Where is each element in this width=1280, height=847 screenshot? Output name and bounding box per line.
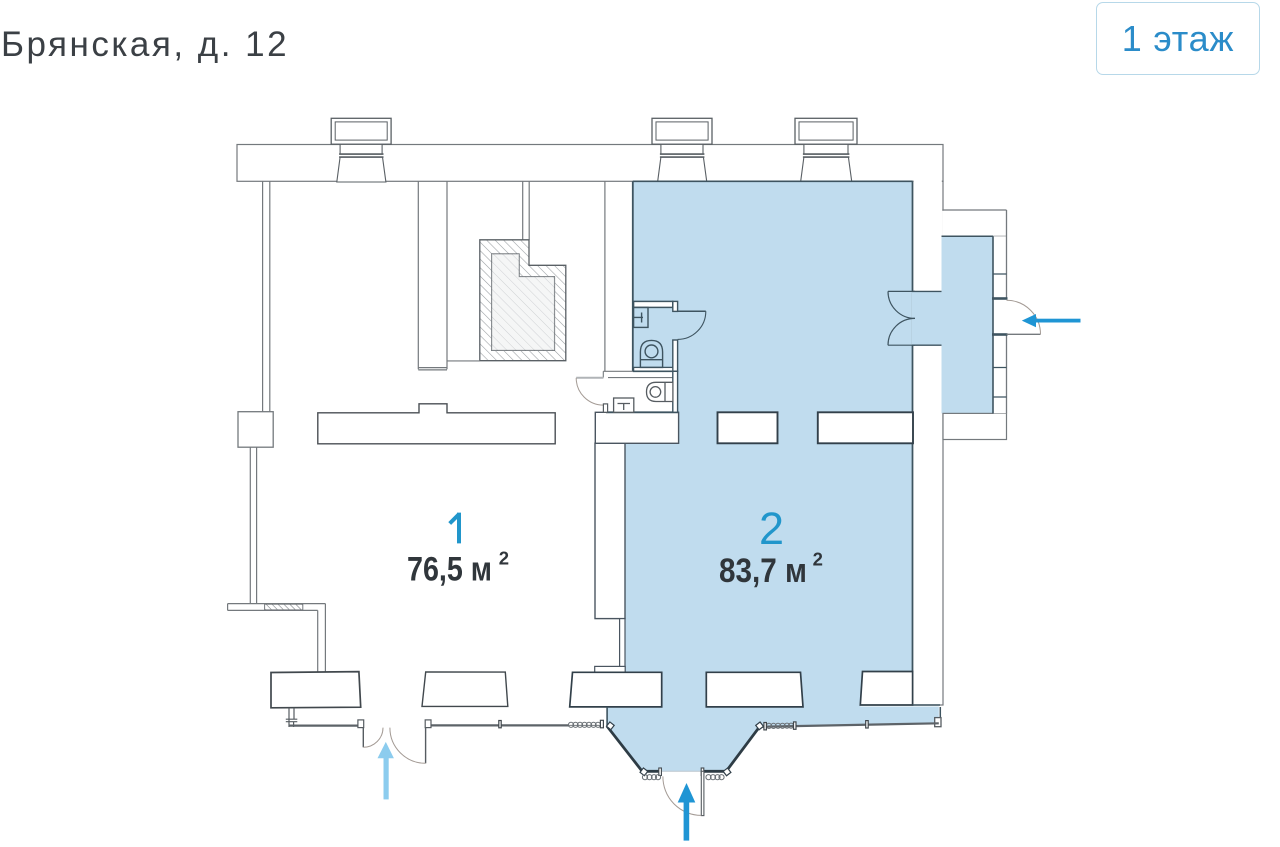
svg-text:83,7 м: 83,7 м (719, 552, 807, 590)
svg-text:2: 2 (759, 503, 784, 554)
svg-text:2: 2 (499, 547, 509, 568)
svg-text:76,5 м: 76,5 м (407, 551, 492, 589)
svg-text:2: 2 (813, 549, 823, 570)
